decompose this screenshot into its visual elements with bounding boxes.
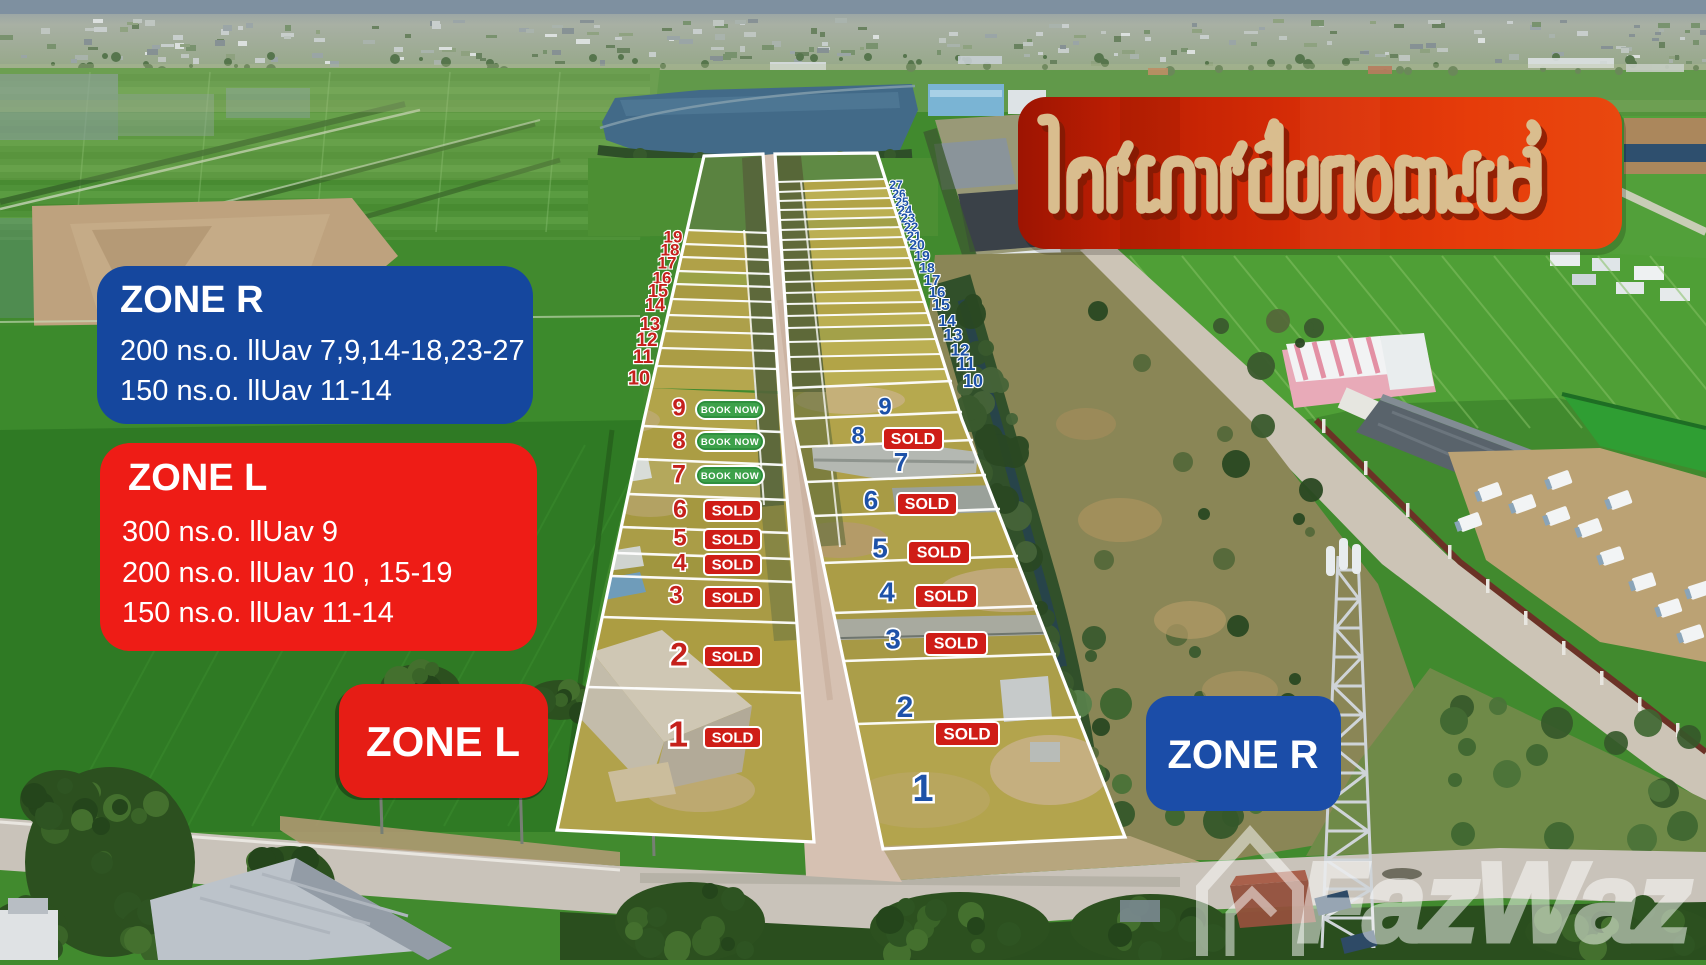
svg-text:200 ns.o. llUav 10 , 15-19: 200 ns.o. llUav 10 , 15-19 [122, 557, 452, 589]
svg-text:SOLD: SOLD [934, 636, 978, 653]
svg-text:5: 5 [673, 524, 686, 551]
svg-text:SOLD: SOLD [712, 556, 754, 573]
svg-text:11: 11 [633, 347, 654, 368]
svg-text:9: 9 [878, 393, 891, 420]
svg-text:200 ns.o. llUav 7,9,14-18,23-2: 200 ns.o. llUav 7,9,14-18,23-27 [120, 335, 525, 367]
svg-text:2: 2 [897, 691, 914, 724]
svg-text:9: 9 [672, 394, 685, 421]
svg-text:SOLD: SOLD [917, 545, 961, 562]
svg-text:1: 1 [912, 768, 933, 810]
svg-text:ZONE R: ZONE R [1167, 733, 1318, 777]
svg-text:SOLD: SOLD [891, 431, 935, 448]
svg-text:SOLD: SOLD [712, 531, 754, 548]
svg-text:BOOK NOW: BOOK NOW [701, 437, 759, 448]
svg-text:ZONE L: ZONE L [128, 457, 267, 499]
svg-text:8: 8 [672, 427, 685, 454]
svg-text:10: 10 [628, 367, 650, 389]
svg-text:SOLD: SOLD [712, 502, 754, 519]
svg-text:2: 2 [670, 636, 688, 672]
svg-text:4: 4 [673, 549, 687, 576]
svg-text:300 ns.o. llUav 9: 300 ns.o. llUav 9 [122, 516, 338, 548]
svg-text:7: 7 [894, 447, 908, 477]
svg-text:BOOK NOW: BOOK NOW [701, 471, 759, 482]
svg-text:150 ns.o. llUav 11-14: 150 ns.o. llUav 11-14 [120, 375, 392, 407]
svg-text:3: 3 [669, 582, 683, 610]
svg-text:ZONE R: ZONE R [120, 279, 264, 321]
svg-text:15: 15 [932, 297, 950, 314]
svg-text:SOLD: SOLD [712, 589, 754, 606]
svg-text:150 ns.o. llUav 11-14: 150 ns.o. llUav 11-14 [122, 597, 394, 629]
svg-text:10: 10 [963, 371, 983, 391]
svg-text:1: 1 [668, 714, 688, 755]
svg-text:SOLD: SOLD [712, 648, 754, 665]
svg-text:6: 6 [673, 496, 687, 524]
svg-text:5: 5 [872, 532, 888, 563]
svg-text:SOLD: SOLD [924, 589, 968, 606]
svg-text:SOLD: SOLD [905, 496, 949, 513]
svg-text:4: 4 [879, 576, 895, 607]
svg-text:ZONE L: ZONE L [366, 718, 520, 765]
svg-text:6: 6 [864, 485, 878, 515]
svg-text:14: 14 [645, 295, 665, 315]
svg-text:SOLD: SOLD [943, 724, 990, 743]
svg-text:FazWaz: FazWaz [1298, 840, 1692, 960]
svg-text:3: 3 [885, 623, 901, 654]
svg-text:SOLD: SOLD [712, 729, 754, 746]
svg-text:BOOK NOW: BOOK NOW [701, 405, 759, 416]
svg-text:7: 7 [672, 461, 686, 489]
svg-text:8: 8 [851, 422, 864, 449]
